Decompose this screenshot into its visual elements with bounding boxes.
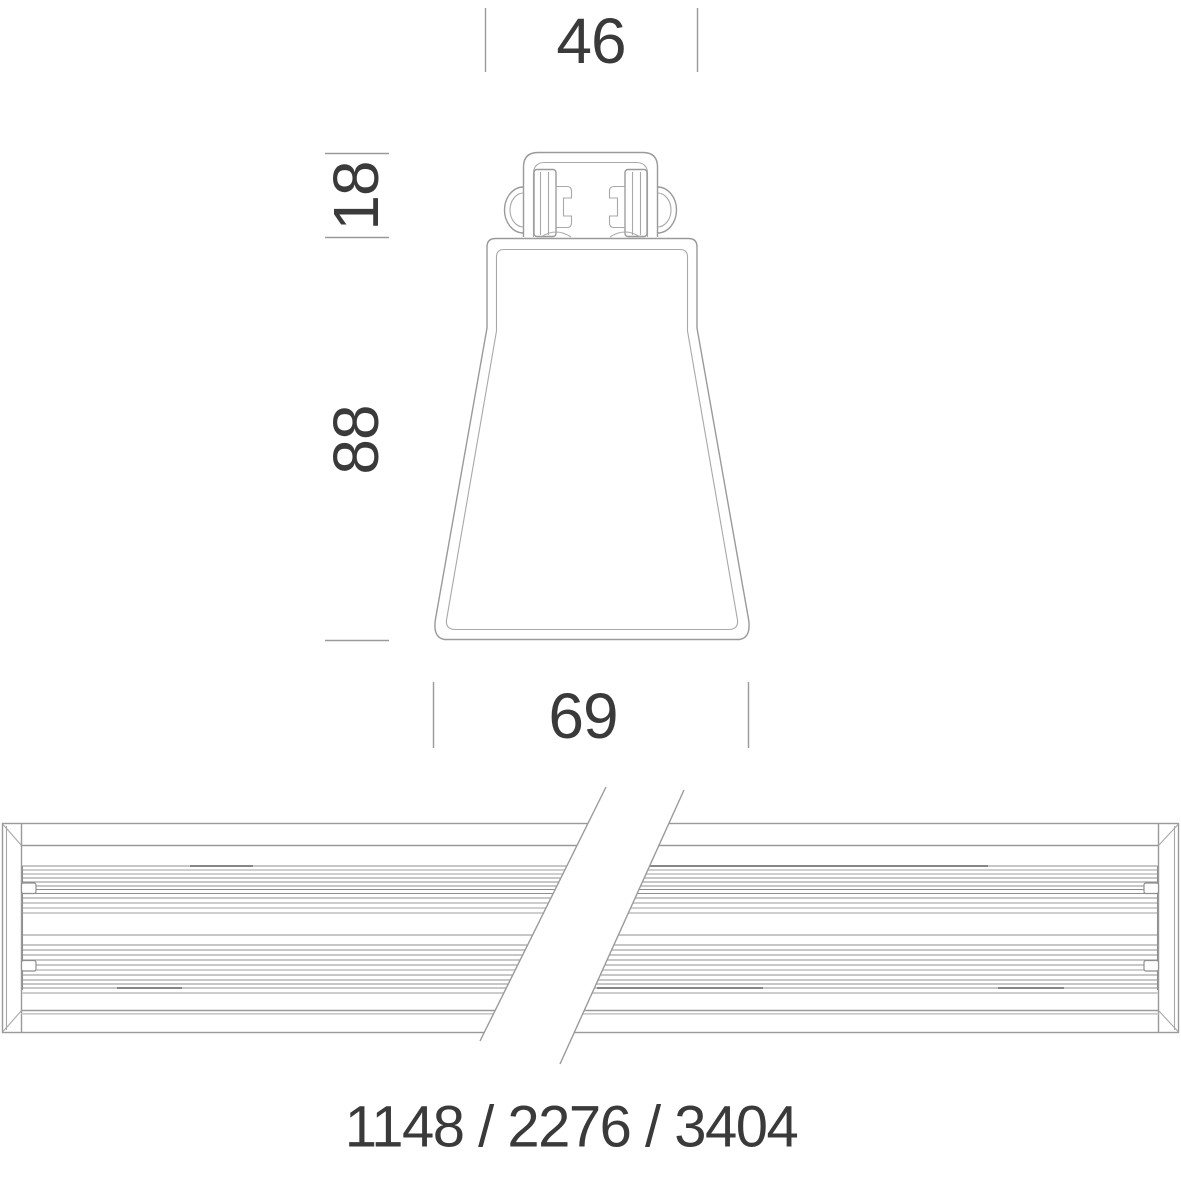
bracket-outer [524,153,658,238]
left-roller-inner [510,193,524,227]
plan-view: 1148 / 2276 / 3404 [3,786,1179,1160]
dimension-mount-height-value: 18 [320,161,392,230]
body-outer [435,239,749,640]
length-options-label: 1148 / 2276 / 3404 [345,1095,798,1160]
right-clip-plate [625,170,647,237]
length-break [480,786,684,1065]
technical-drawing: 46 18 88 [0,0,1181,1181]
mount-tab [22,883,37,894]
left-clip [534,170,572,238]
mount-tab [1144,883,1159,894]
body-inner [446,250,737,630]
left-end-cap [3,824,22,1033]
dimension-top-width-value: 46 [556,5,625,77]
cap-corner-diagonal [1159,1011,1179,1032]
break-mask [480,786,684,1065]
cap-corner-diagonal [1159,825,1179,846]
dimension-body-height-value: 88 [320,405,392,474]
dimension-top-width: 46 [486,5,698,77]
mounting-bracket [505,153,677,238]
section-view: 46 18 88 [320,5,749,752]
bracket-inner [534,163,648,238]
dimension-base-width-value: 69 [548,680,617,752]
right-roller-inner [658,193,672,227]
mount-tab [22,961,37,972]
dimension-body-height: 88 [320,405,392,640]
cap-corner-diagonal [3,1011,22,1032]
right-end-cap [1159,824,1179,1033]
dimension-base-width: 69 [434,680,749,752]
dimension-mount-height: 18 [320,154,392,238]
right-clip-claw [610,187,626,228]
left-clip-claw [556,187,572,228]
body-profile [435,239,749,640]
mount-tab [1144,961,1159,972]
cap-corner-diagonal [3,825,22,846]
left-clip-plate [534,170,556,237]
right-clip [610,170,648,238]
